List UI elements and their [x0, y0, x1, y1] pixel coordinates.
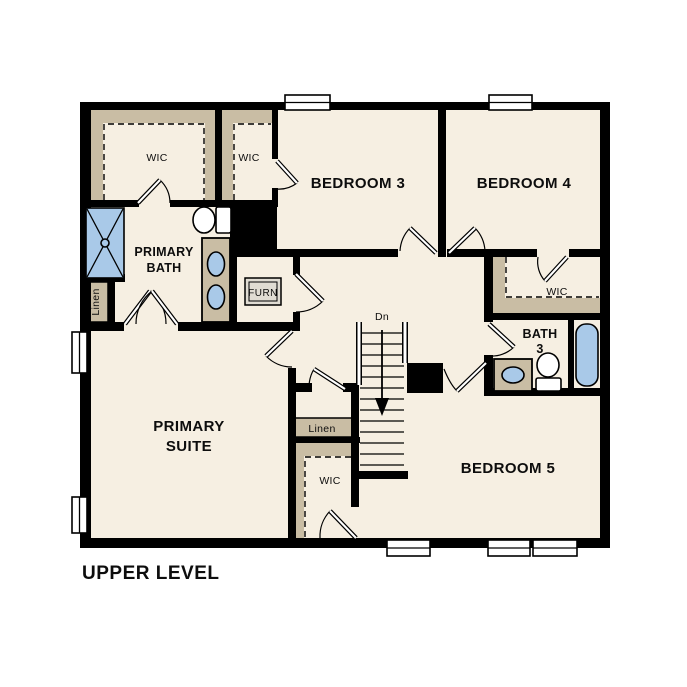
floor-plan-page: WIC WIC BEDROOM 3 BEDROOM 4 PRIMARY BATH… [0, 0, 687, 687]
furnace-label: FURN [248, 288, 278, 299]
primary-suite-label-line2: SUITE [166, 438, 212, 455]
window [533, 540, 577, 556]
wic-bedroom3-label: WIC [238, 152, 259, 164]
window [488, 540, 530, 556]
toilet-fixture-primary [193, 207, 231, 233]
linen-hall-label: Linen [308, 423, 335, 435]
primary-suite-label-line1: PRIMARY [153, 418, 224, 435]
vanity-sink-bath3 [494, 359, 532, 391]
bedroom3-label: BEDROOM 3 [311, 175, 405, 192]
bedroom4-label: BEDROOM 4 [477, 175, 572, 192]
toilet-fixture-bath3 [536, 353, 561, 391]
bath3-label-line2: 3 [536, 342, 543, 356]
bedroom5-label: BEDROOM 5 [461, 460, 555, 477]
window [72, 497, 87, 533]
shower-fixture [86, 208, 124, 278]
chase-fill-upper [230, 207, 277, 249]
linen-bath-label: Linen [90, 288, 102, 315]
primary-bath-label-line1: PRIMARY [134, 245, 194, 259]
primary-bath-label-line2: BATH [147, 261, 182, 275]
bath3-label-line1: BATH [523, 327, 558, 341]
stairs-dn-label: Dn [375, 311, 389, 323]
wic-bedroom5-label: WIC [319, 475, 340, 487]
wic-right-label: WIC [546, 286, 567, 298]
window [387, 540, 430, 556]
chase-fill-stairs [407, 363, 443, 393]
window [285, 95, 330, 110]
window [489, 95, 532, 110]
window [72, 332, 87, 373]
bathtub-fixture [576, 324, 598, 386]
page-title: UPPER LEVEL [82, 563, 219, 584]
floor-plan-drawing: WIC WIC BEDROOM 3 BEDROOM 4 PRIMARY BATH… [0, 0, 687, 687]
wic-primary-label: WIC [146, 152, 167, 164]
vanity-double-sink [202, 238, 230, 322]
